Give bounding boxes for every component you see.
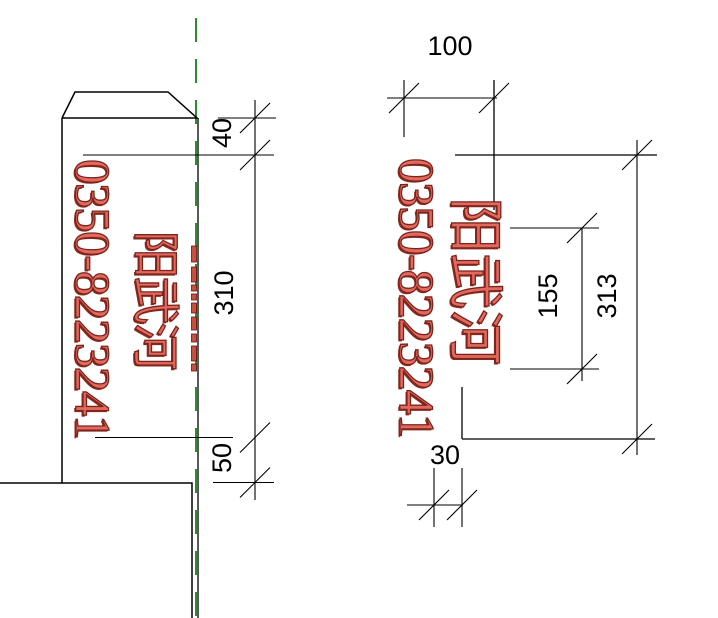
dim-total-height: 313: [594, 261, 620, 331]
front-view-phone-number: 0350-8223241: [395, 158, 439, 434]
dim-top-offset: 40: [209, 108, 235, 158]
ground-texture: [0, 483, 192, 618]
dim-bottom-offset: 50: [209, 433, 235, 483]
dim-side-offset: 30: [415, 442, 475, 468]
cad-drawing-canvas: 0350-8223241 阳武河 40 310 50 0350-8223241 …: [0, 0, 718, 618]
side-view-phone-number: 0350-8223241: [71, 158, 115, 440]
side-view-river-name: 阳武河: [127, 228, 184, 371]
dim-width: 100: [410, 33, 490, 59]
front-view-river-name: 阳武河: [442, 195, 504, 368]
dim-text-length: 310: [211, 258, 237, 328]
dim-inner-height: 155: [535, 261, 561, 331]
